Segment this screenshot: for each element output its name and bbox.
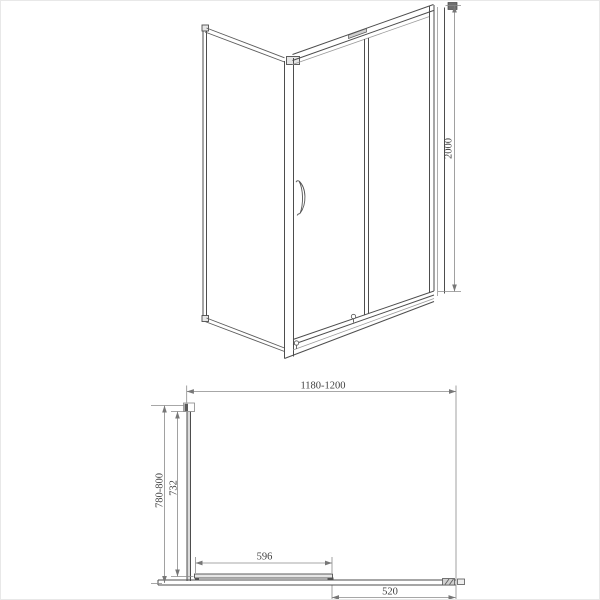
dim-overall-depth-label: 780-800 xyxy=(155,473,166,508)
roller-wheel-right xyxy=(351,314,355,318)
door-mullion xyxy=(365,38,369,315)
plan-fixed-dimension: 520 xyxy=(332,586,456,600)
side-panel-edge-profile xyxy=(203,31,207,316)
plan-side-panel-glass xyxy=(187,404,191,581)
plan-door-glass xyxy=(195,574,333,578)
plan-width-dimension: 1180-1200 xyxy=(187,381,456,600)
plan-track-rails xyxy=(158,580,456,585)
drawing-canvas: 2000 xyxy=(1,1,600,600)
top-rail-glass-line xyxy=(293,17,430,65)
side-panel-bottom-edge xyxy=(205,318,285,352)
plan-wall-profile xyxy=(185,404,189,411)
bottom-rail-glass-line xyxy=(293,299,434,351)
bottom-rollers xyxy=(294,314,355,349)
plan-right-wall-profile xyxy=(458,579,465,585)
dim-fixed-panel-label: 520 xyxy=(382,587,398,598)
dim-overall-width-label: 1180-1200 xyxy=(300,381,345,392)
dim-door-panel-label: 596 xyxy=(257,552,273,563)
door-handle-ends xyxy=(296,181,300,216)
left-post xyxy=(285,58,294,359)
technical-drawing: 2000 xyxy=(0,0,600,600)
front-door-unit xyxy=(285,3,458,359)
height-dimension: 2000 xyxy=(438,6,461,292)
side-panel-top-edge xyxy=(205,28,285,62)
perspective-view: 2000 xyxy=(202,3,461,359)
plan-side-panel xyxy=(184,403,195,581)
plan-width-extension-lines xyxy=(187,386,456,600)
side-panel xyxy=(202,25,285,352)
roller-wheel-left xyxy=(294,341,298,345)
bottom-rail xyxy=(293,291,434,345)
bottom-rail-base xyxy=(285,302,435,359)
dim-side-glass-label: 732 xyxy=(169,480,180,496)
plan-view: 1180-1200 780-800 732 596 xyxy=(151,381,465,600)
door-handle xyxy=(299,181,305,214)
dim-height-label: 2000 xyxy=(444,138,455,159)
right-post xyxy=(430,5,435,293)
plan-track xyxy=(158,579,465,586)
right-wall-top-cap xyxy=(448,3,457,10)
plan-door-dimension: 596 xyxy=(196,552,333,574)
